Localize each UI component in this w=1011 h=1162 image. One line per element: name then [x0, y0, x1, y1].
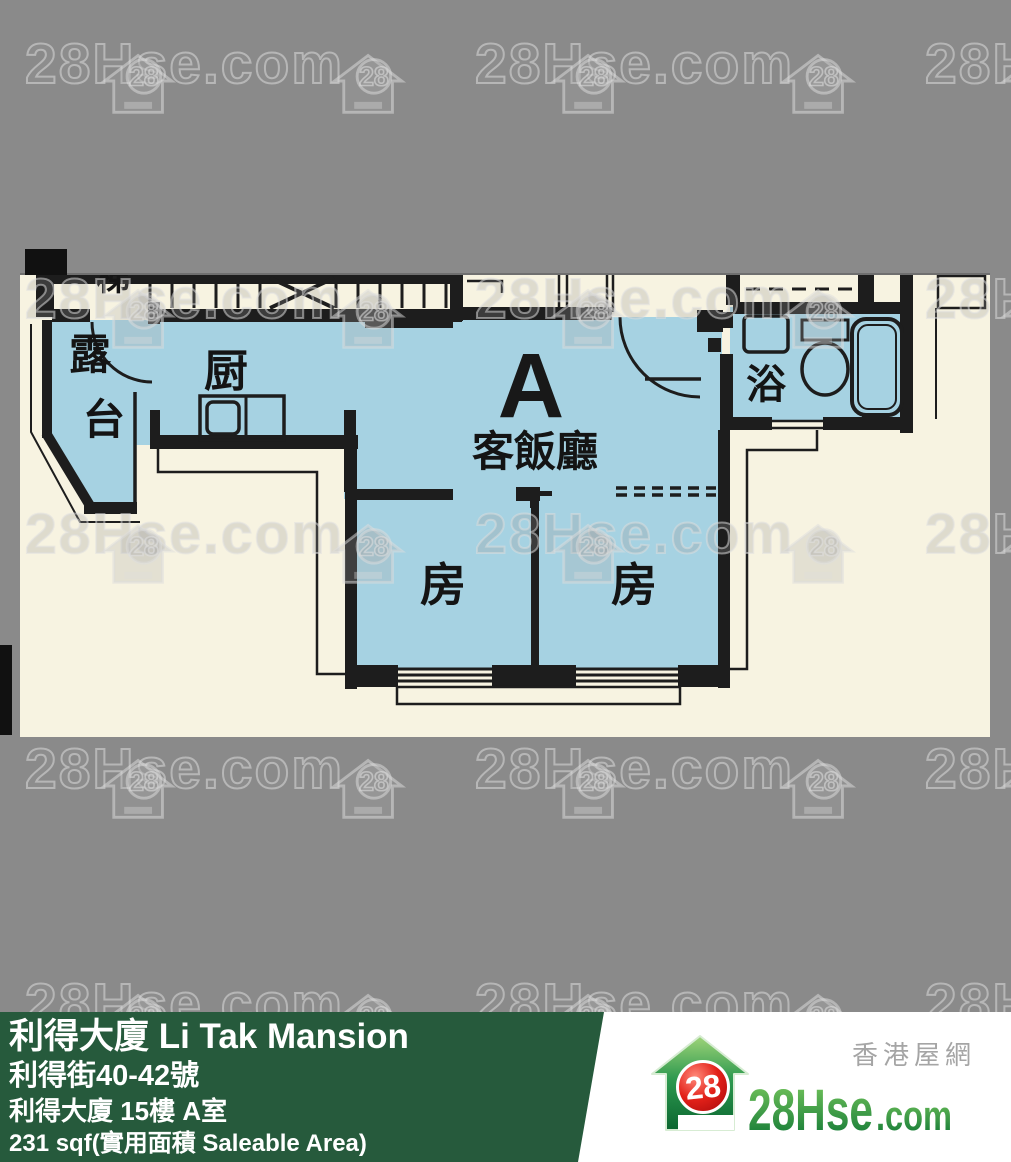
- scan-artifact-top: [25, 249, 67, 275]
- logo-tagline: 香港屋網: [852, 1040, 976, 1070]
- scan-artifact-left: [0, 645, 12, 735]
- property-unit: 利得大廈 15樓 A室: [9, 1095, 409, 1128]
- floorplan-page: 梯: [0, 0, 1011, 1162]
- balcony-label-1: 露: [69, 331, 112, 378]
- top-right-box: [938, 276, 985, 308]
- floorplan-image: 梯: [20, 273, 990, 737]
- lobby-shaft-lines: [467, 275, 613, 312]
- left-setback-outline: [158, 449, 345, 674]
- logo-brand-main: 28Hse: [748, 1078, 873, 1143]
- lift-shaft: [726, 275, 874, 305]
- info-bar-green-band: 利得大廈 Li Tak Mansion 利得街40-42號 利得大廈 15樓 A…: [0, 1012, 660, 1162]
- unit-area: [42, 307, 902, 668]
- property-address: 利得街40-42號: [9, 1058, 409, 1095]
- balcony-label-2: 台: [83, 396, 125, 443]
- bedroom-divider-wall: [531, 499, 539, 667]
- window-right: [576, 669, 678, 681]
- bedroom-left-label: 房: [420, 559, 466, 611]
- stairs-label: 梯: [96, 275, 130, 298]
- logo-brand-suffix: .com: [876, 1092, 952, 1139]
- property-title: 利得大廈 Li Tak Mansion: [9, 1016, 409, 1058]
- bath-label: 浴: [746, 363, 787, 407]
- bedroom-right-label: 房: [611, 559, 657, 611]
- property-info: 利得大廈 Li Tak Mansion 利得街40-42號 利得大廈 15樓 A…: [9, 1016, 409, 1159]
- right-setback-outline: [730, 430, 817, 669]
- window-sill-outline: [397, 687, 680, 704]
- bath-window: [770, 421, 825, 428]
- site-logo: 28 28Hse .com 香港屋網: [630, 1030, 1011, 1160]
- floorplan-drawing: 梯: [20, 275, 990, 737]
- logo-house-icon: 28: [652, 1036, 748, 1130]
- kitchen-label: 厨: [204, 347, 248, 396]
- balcony-door-hinge: [148, 302, 160, 324]
- bottom-windows: [348, 665, 730, 704]
- info-bar: 利得大廈 Li Tak Mansion 利得街40-42號 利得大廈 15樓 A…: [0, 1012, 1011, 1162]
- unit-label: A: [498, 335, 564, 437]
- window-left: [398, 669, 492, 681]
- bath-door-block: [708, 338, 721, 352]
- logo-badge-text: 28: [683, 1067, 722, 1107]
- living-dining-label: 客飯廳: [472, 428, 598, 475]
- property-area: 231 sqf(實用面積 Saleable Area): [9, 1128, 409, 1159]
